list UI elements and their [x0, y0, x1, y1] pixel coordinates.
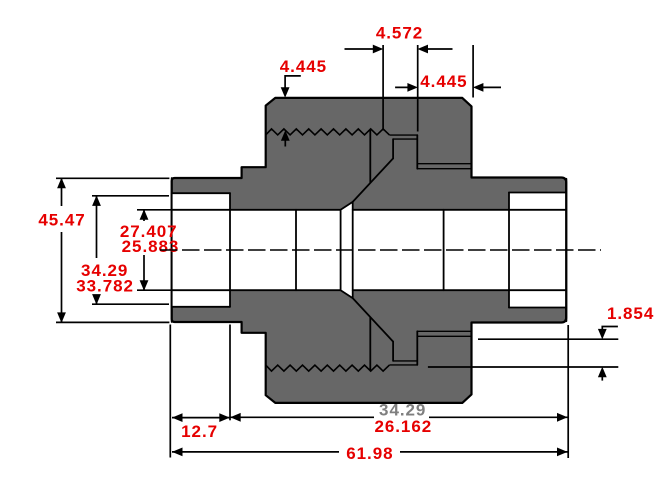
svg-text:45.47: 45.47	[38, 210, 85, 229]
svg-text:1.854: 1.854	[607, 304, 654, 323]
svg-text:61.98: 61.98	[346, 444, 393, 463]
svg-text:33.782: 33.782	[76, 277, 134, 296]
svg-text:4.445: 4.445	[280, 57, 327, 76]
svg-text:4.445: 4.445	[420, 72, 467, 91]
svg-text:4.572: 4.572	[376, 24, 423, 43]
svg-text:12.7: 12.7	[181, 422, 218, 441]
svg-text:26.162: 26.162	[374, 417, 432, 436]
svg-text:25.883: 25.883	[122, 237, 180, 256]
